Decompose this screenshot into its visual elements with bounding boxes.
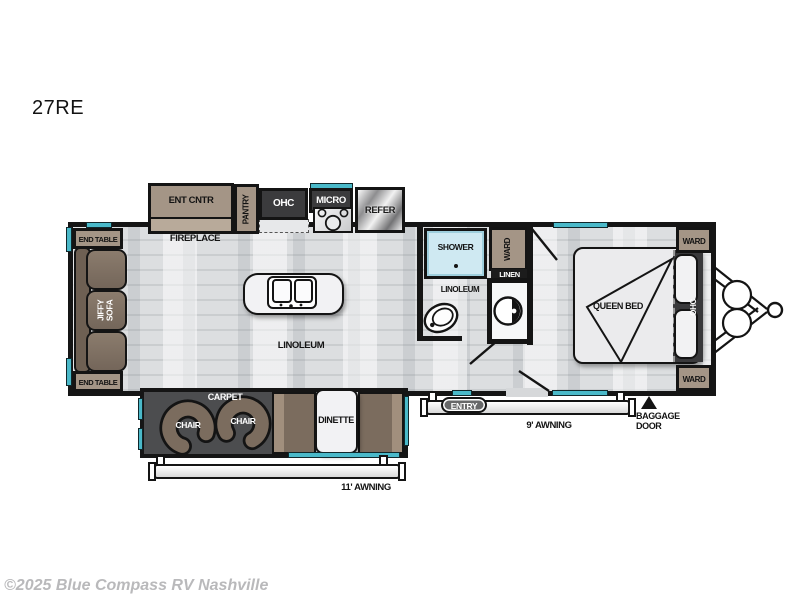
ward-rear-label: WARD <box>679 376 709 384</box>
slide-window-left-2 <box>138 428 143 450</box>
window-entry-left <box>452 390 472 396</box>
ent-cntr-label: ENT CNTR <box>151 196 231 206</box>
hitch-icon <box>713 266 782 354</box>
linoleum-main-label: LINOLEUM <box>255 341 347 351</box>
bed-ohc-label: OHC <box>690 299 699 316</box>
shower-drain <box>454 264 458 268</box>
ward-front-label: WARD <box>679 238 709 246</box>
hitch-coupler <box>768 303 782 317</box>
bath-wall-left <box>417 227 423 341</box>
sofa-label-wrap: JIFFY SOFA <box>84 250 128 370</box>
propane-tank-2 <box>723 309 751 337</box>
fireplace-cabinet <box>151 217 231 231</box>
kitchen-ohc-label: OHC <box>262 199 305 210</box>
baggage-door-icon <box>641 396 657 409</box>
queen-bed-label: QUEEN BED <box>588 302 648 311</box>
pantry-label-wrap: PANTRY <box>234 184 259 234</box>
awning11-label: 11' AWNING <box>326 483 406 493</box>
slide-window-left-1 <box>138 398 143 420</box>
sink-bowl-right <box>294 279 313 303</box>
micro-label: MICRO <box>312 196 350 206</box>
sofa-label: JIFFY SOFA <box>97 295 116 325</box>
propane-tank-1 <box>723 281 751 309</box>
bath-ward-label: WARD <box>504 238 513 261</box>
ward-front: WARD <box>676 227 712 253</box>
fireplace-label: FIREPLACE <box>150 234 240 244</box>
entry-label: ENTRY <box>443 402 485 411</box>
dinette-label: DINETTE <box>303 416 369 425</box>
bath-ward-label-wrap: WARD <box>489 227 528 271</box>
awning11-bar <box>154 464 400 479</box>
end-table-top-label: END TABLE <box>76 236 120 244</box>
bed-ohc-label-wrap: OHC <box>684 285 704 329</box>
chair-right-label: CHAIR <box>217 417 269 426</box>
carpet-label: CARPET <box>194 393 256 402</box>
slide-window-right <box>404 396 409 446</box>
stove <box>313 207 353 233</box>
entry-opening <box>506 388 548 397</box>
toilet-room <box>487 278 532 344</box>
awning9-label: 9' AWNING <box>514 421 584 431</box>
entry-badge: ENTRY <box>441 397 487 413</box>
baggage-door-label: BAGGAGE DOOR <box>636 411 688 432</box>
chair-left-label: CHAIR <box>162 421 214 430</box>
window-left-upper <box>66 227 72 252</box>
bath-wall-bottom <box>417 336 462 341</box>
page-title: 27RE <box>32 98 102 119</box>
pantry-label: PANTRY <box>242 194 251 224</box>
baggage-door-line2: DOOR <box>636 421 688 431</box>
shower-label: SHOWER <box>427 243 484 252</box>
shower: SHOWER <box>424 228 487 279</box>
kitchen-ohc: OHC <box>259 188 308 220</box>
end-table-top: END TABLE <box>73 228 123 249</box>
end-table-bottom: END TABLE <box>73 371 123 392</box>
refer-label: REFER <box>358 206 402 216</box>
baggage-door-line1: BAGGAGE <box>636 411 688 421</box>
linoleum-bath-label: LINOLEUM <box>434 286 486 294</box>
window-left-lower <box>66 358 72 386</box>
watermark: ©2025 Blue Compass RV Nashville <box>4 577 268 595</box>
kitchen-counter <box>259 219 309 233</box>
window-bedroom-bottom <box>552 390 608 396</box>
end-table-bottom-label: END TABLE <box>76 379 120 387</box>
rv-floorplan: 27RE ENT CNTR PANTRY OHC MICRO REFER END… <box>0 0 800 600</box>
ward-rear: WARD <box>676 365 712 391</box>
window-bedroom-top <box>553 222 608 228</box>
refrigerator: REFER <box>355 187 405 233</box>
entertainment-center: ENT CNTR <box>148 183 234 234</box>
sink-bowl-left <box>272 279 292 303</box>
